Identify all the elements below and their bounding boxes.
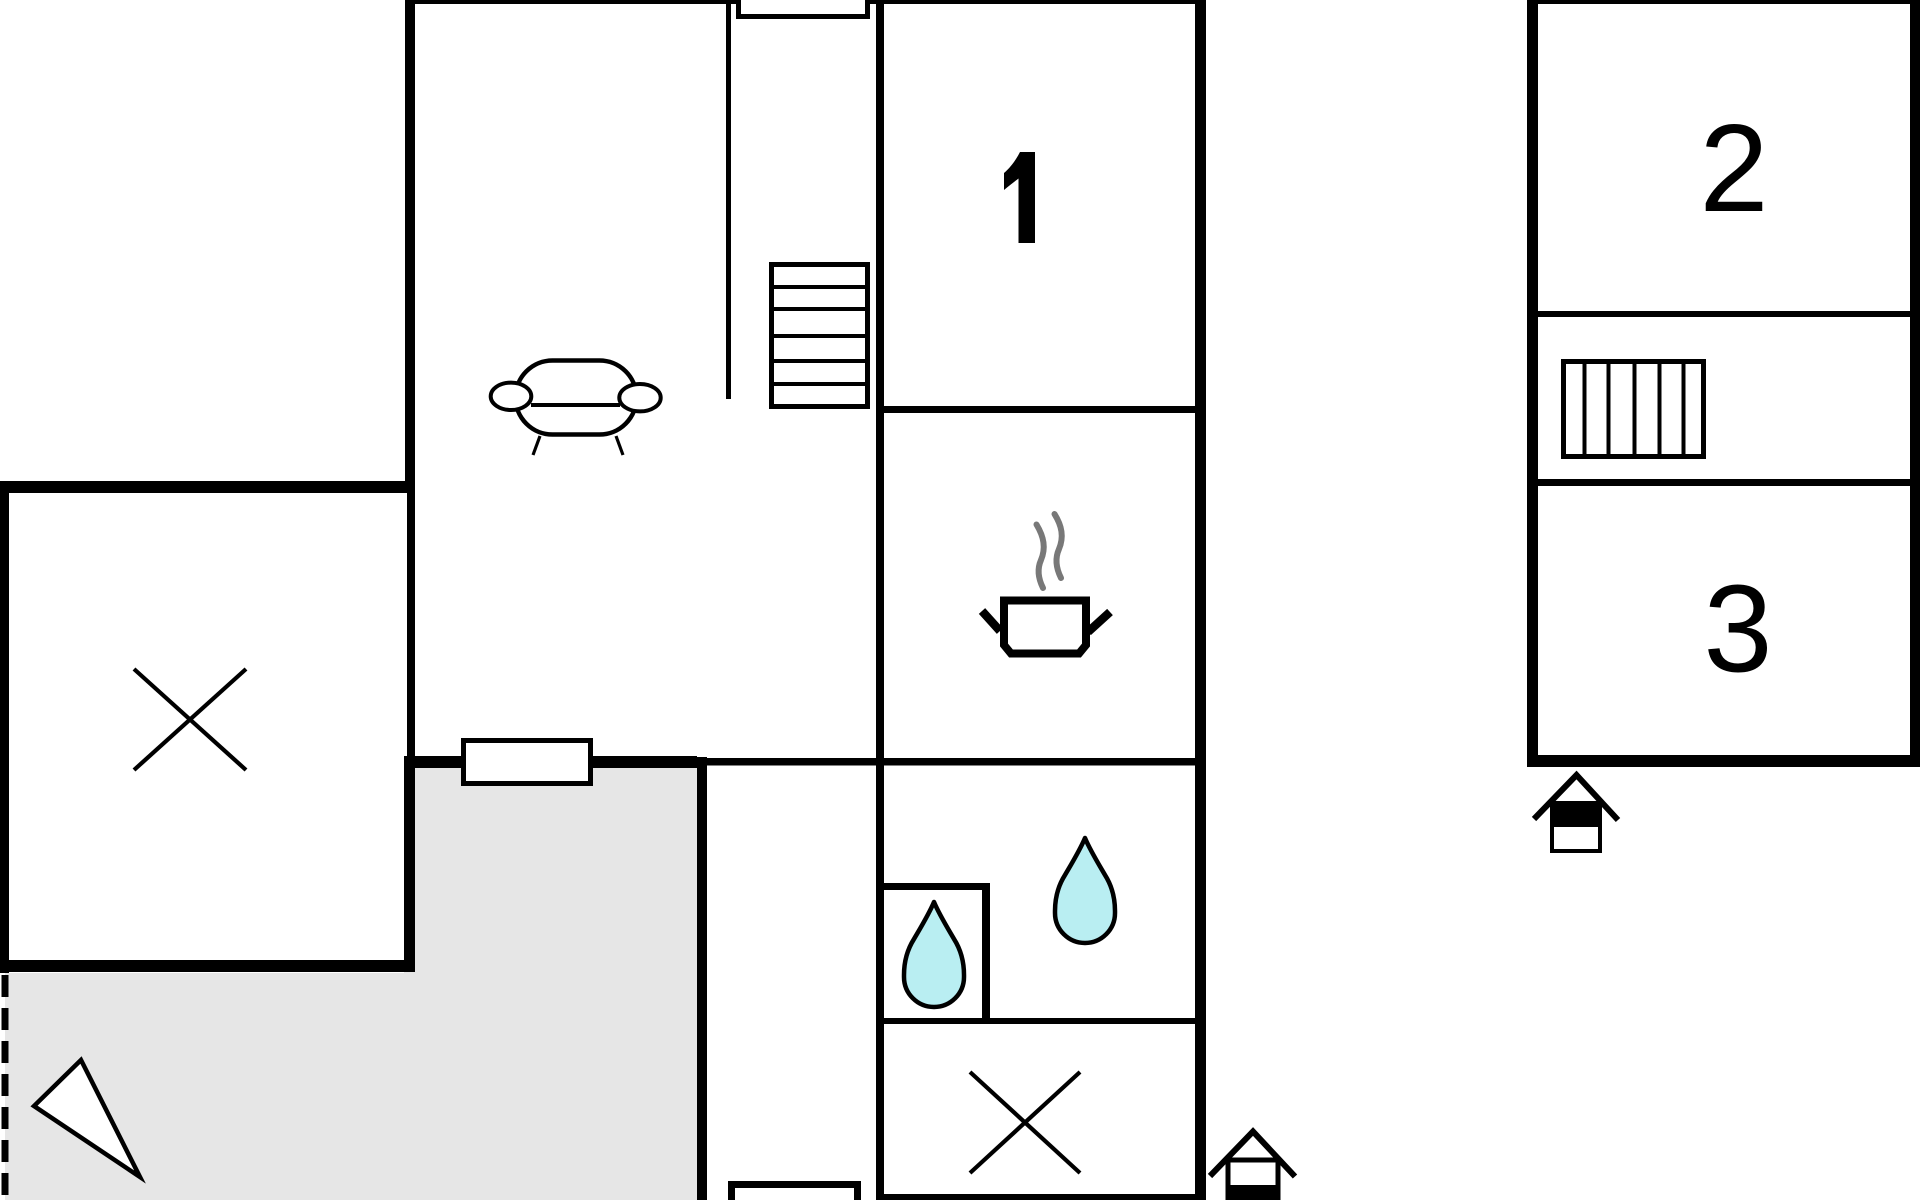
svg-text:2: 2 — [1700, 100, 1769, 238]
svg-text:3: 3 — [1704, 561, 1773, 699]
